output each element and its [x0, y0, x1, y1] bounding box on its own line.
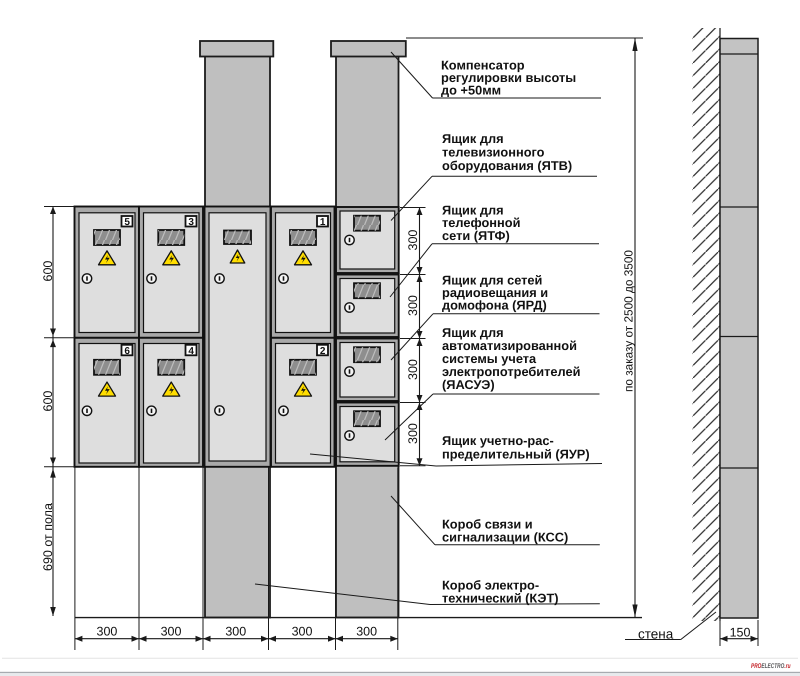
svg-text:300: 300	[97, 625, 118, 639]
svg-text:150: 150	[730, 626, 751, 640]
svg-text:пределительный (ЯУР): пределительный (ЯУР)	[442, 447, 590, 462]
svg-text:300: 300	[292, 625, 313, 639]
svg-text:1: 1	[320, 217, 326, 228]
svg-text:4: 4	[188, 346, 194, 357]
svg-text:домофона (ЯРД): домофона (ЯРД)	[442, 298, 547, 313]
svg-text:до +50мм: до +50мм	[441, 83, 501, 98]
svg-text:технический (КЭТ): технический (КЭТ)	[442, 591, 559, 606]
svg-text:стена: стена	[638, 627, 674, 642]
svg-text:3: 3	[188, 217, 194, 228]
svg-text:оборудования (ЯТВ): оборудования (ЯТВ)	[442, 158, 572, 173]
svg-text:PROELECTRO.ru: PROELECTRO.ru	[751, 663, 791, 670]
svg-text:690 от пола: 690 от пола	[41, 503, 55, 571]
svg-text:300: 300	[356, 625, 377, 639]
svg-text:600: 600	[41, 391, 55, 412]
svg-text:сигнализации (КСС): сигнализации (КСС)	[442, 530, 568, 545]
svg-text:300: 300	[225, 625, 246, 639]
svg-text:(ЯАСУЭ): (ЯАСУЭ)	[442, 377, 495, 392]
svg-text:300: 300	[406, 295, 420, 316]
svg-text:600: 600	[41, 261, 55, 282]
svg-text:300: 300	[406, 230, 420, 251]
svg-text:300: 300	[406, 359, 420, 380]
svg-text:2: 2	[320, 346, 326, 357]
svg-text:сети (ЯТФ): сети (ЯТФ)	[442, 228, 510, 243]
svg-text:300: 300	[161, 625, 182, 639]
svg-text:6: 6	[124, 346, 130, 357]
svg-text:300: 300	[406, 423, 420, 444]
svg-text:5: 5	[124, 217, 130, 228]
svg-text:по заказу от 2500 до 3500: по заказу от 2500 до 3500	[622, 250, 636, 392]
